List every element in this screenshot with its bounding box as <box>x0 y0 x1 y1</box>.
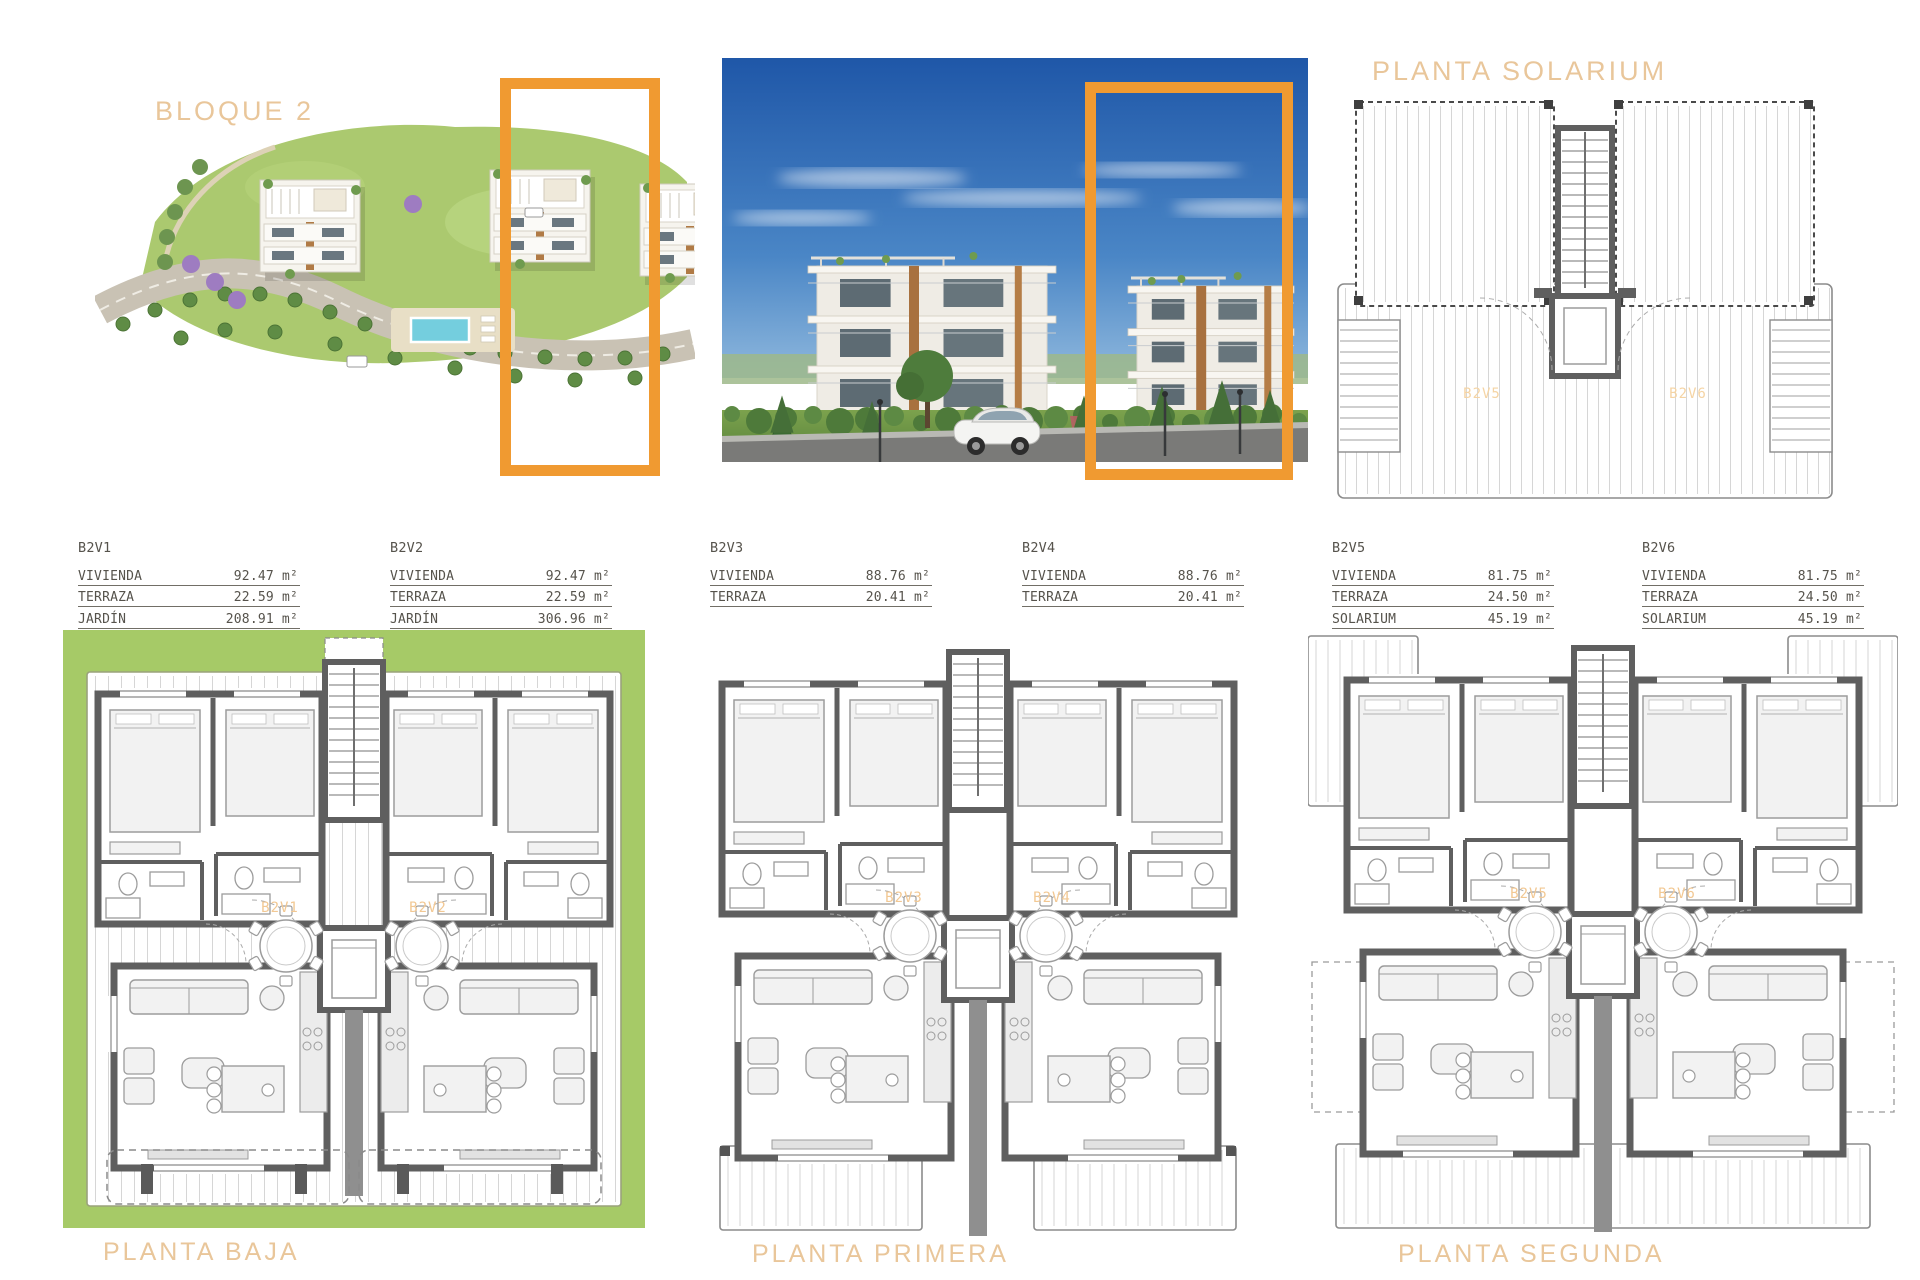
row-value: 20.41 m² <box>866 590 930 605</box>
row-value: 88.76 m² <box>1178 569 1242 584</box>
table-row: TERRAZA24.50 m² <box>1642 586 1864 608</box>
row-label: TERRAZA <box>1022 590 1078 605</box>
row-label: JARDÍN <box>390 612 438 627</box>
row-label: VIVIENDA <box>78 569 142 584</box>
unit-table-B2V2: B2V2VIVIENDA92.47 m²TERRAZA22.59 m²JARDÍ… <box>390 540 612 629</box>
side-stair <box>1770 320 1832 452</box>
planta-baja-caption: PLANTA BAJA <box>103 1238 300 1267</box>
solarium-wing-right <box>1616 102 1814 306</box>
row-value: 45.19 m² <box>1798 612 1862 627</box>
aerial-building <box>260 179 365 281</box>
row-value: 81.75 m² <box>1488 569 1552 584</box>
planta-segunda-caption: PLANTA SEGUNDA <box>1398 1240 1665 1269</box>
row-label: JARDÍN <box>78 612 126 627</box>
row-value: 81.75 m² <box>1798 569 1862 584</box>
table-row: VIVIENDA88.76 m² <box>1022 564 1244 586</box>
table-row: TERRAZA22.59 m² <box>78 586 300 608</box>
table-row: JARDÍN208.91 m² <box>78 607 300 629</box>
row-label: TERRAZA <box>710 590 766 605</box>
unit-label-B2V6: B2V6 <box>1669 386 1707 402</box>
unit-table-header: B2V2 <box>390 540 612 556</box>
unit-table-B2V5: B2V5VIVIENDA81.75 m²TERRAZA24.50 m²SOLAR… <box>1332 540 1554 629</box>
unit-table-B2V6: B2V6VIVIENDA81.75 m²TERRAZA24.50 m²SOLAR… <box>1642 540 1864 629</box>
unit-label-B2V5: B2V5 <box>1510 886 1548 902</box>
row-label: TERRAZA <box>1332 590 1388 605</box>
table-row: SOLARIUM45.19 m² <box>1642 607 1864 629</box>
unit-table-header: B2V1 <box>78 540 300 556</box>
unit-label-B2V4: B2V4 <box>1033 890 1071 906</box>
row-label: VIVIENDA <box>1332 569 1396 584</box>
unit-table-B2V3: B2V3VIVIENDA88.76 m²TERRAZA20.41 m² <box>710 540 932 607</box>
unit-label-B2V3: B2V3 <box>885 890 923 906</box>
unit-label-B2V2: B2V2 <box>409 900 447 916</box>
row-label: VIVIENDA <box>1022 569 1086 584</box>
solarium-title: PLANTA SOLARIUM <box>1372 56 1667 87</box>
cloud <box>777 169 967 187</box>
planta-baja-garden: B2V1B2V2 <box>63 630 645 1228</box>
row-label: SOLARIUM <box>1642 612 1706 627</box>
table-row: VIVIENDA81.75 m² <box>1642 564 1864 586</box>
row-label: VIVIENDA <box>1642 569 1706 584</box>
planta-solarium-plan: B2V5B2V6 <box>1330 92 1840 510</box>
brochure-page: BLOQUE 2 PLANTA SOLARIUM B2V5B2V6 B2V1VI… <box>0 0 1920 1280</box>
row-label: TERRAZA <box>1642 590 1698 605</box>
row-label: SOLARIUM <box>1332 612 1396 627</box>
row-value: 24.50 m² <box>1798 590 1862 605</box>
row-value: 92.47 m² <box>546 569 610 584</box>
unit-table-header: B2V3 <box>710 540 932 556</box>
table-row: TERRAZA22.59 m² <box>390 586 612 608</box>
side-stair <box>1338 320 1400 452</box>
floor-plan-segunda: B2V5B2V6 <box>1347 648 1859 1232</box>
row-label: TERRAZA <box>390 590 446 605</box>
row-label: TERRAZA <box>78 590 134 605</box>
planta-primera-caption: PLANTA PRIMERA <box>752 1240 1009 1269</box>
floor-plan-primera: B2V3B2V4 <box>722 652 1234 1236</box>
table-row: JARDÍN306.96 m² <box>390 607 612 629</box>
row-value: 92.47 m² <box>234 569 298 584</box>
row-label: VIVIENDA <box>390 569 454 584</box>
row-label: VIVIENDA <box>710 569 774 584</box>
planta-segunda-plan: B2V5B2V6 <box>1308 632 1898 1232</box>
row-value: 24.50 m² <box>1488 590 1552 605</box>
table-row: VIVIENDA92.47 m² <box>390 564 612 586</box>
row-value: 20.41 m² <box>1178 590 1242 605</box>
unit-table-B2V1: B2V1VIVIENDA92.47 m²TERRAZA22.59 m²JARDÍ… <box>78 540 300 629</box>
row-value: 45.19 m² <box>1488 612 1552 627</box>
planta-baja-plan: B2V1B2V2 <box>63 630 645 1228</box>
table-row: VIVIENDA81.75 m² <box>1332 564 1554 586</box>
row-value: 208.91 m² <box>226 612 298 627</box>
unit-table-header: B2V4 <box>1022 540 1244 556</box>
table-row: SOLARIUM45.19 m² <box>1332 607 1554 629</box>
unit-table-header: B2V6 <box>1642 540 1864 556</box>
highlight-box-aerial <box>500 78 660 476</box>
unit-label-B2V6: B2V6 <box>1658 886 1696 902</box>
highlight-box-photo <box>1085 82 1293 480</box>
table-row: VIVIENDA92.47 m² <box>78 564 300 586</box>
row-value: 88.76 m² <box>866 569 930 584</box>
unit-label-B2V5: B2V5 <box>1463 386 1501 402</box>
table-row: VIVIENDA88.76 m² <box>710 564 932 586</box>
planta-primera-plan: B2V3B2V4 <box>718 634 1238 1236</box>
unit-table-B2V4: B2V4VIVIENDA88.76 m²TERRAZA20.41 m² <box>1022 540 1244 607</box>
unit-table-header: B2V5 <box>1332 540 1554 556</box>
table-row: TERRAZA24.50 m² <box>1332 586 1554 608</box>
row-value: 306.96 m² <box>538 612 610 627</box>
pool-area <box>391 308 515 352</box>
table-row: TERRAZA20.41 m² <box>710 586 932 608</box>
cloud <box>732 211 872 225</box>
car <box>347 356 367 367</box>
table-row: TERRAZA20.41 m² <box>1022 586 1244 608</box>
row-value: 22.59 m² <box>546 590 610 605</box>
solarium-wing-left <box>1356 102 1554 306</box>
row-value: 22.59 m² <box>234 590 298 605</box>
unit-label-B2V1: B2V1 <box>261 900 299 916</box>
